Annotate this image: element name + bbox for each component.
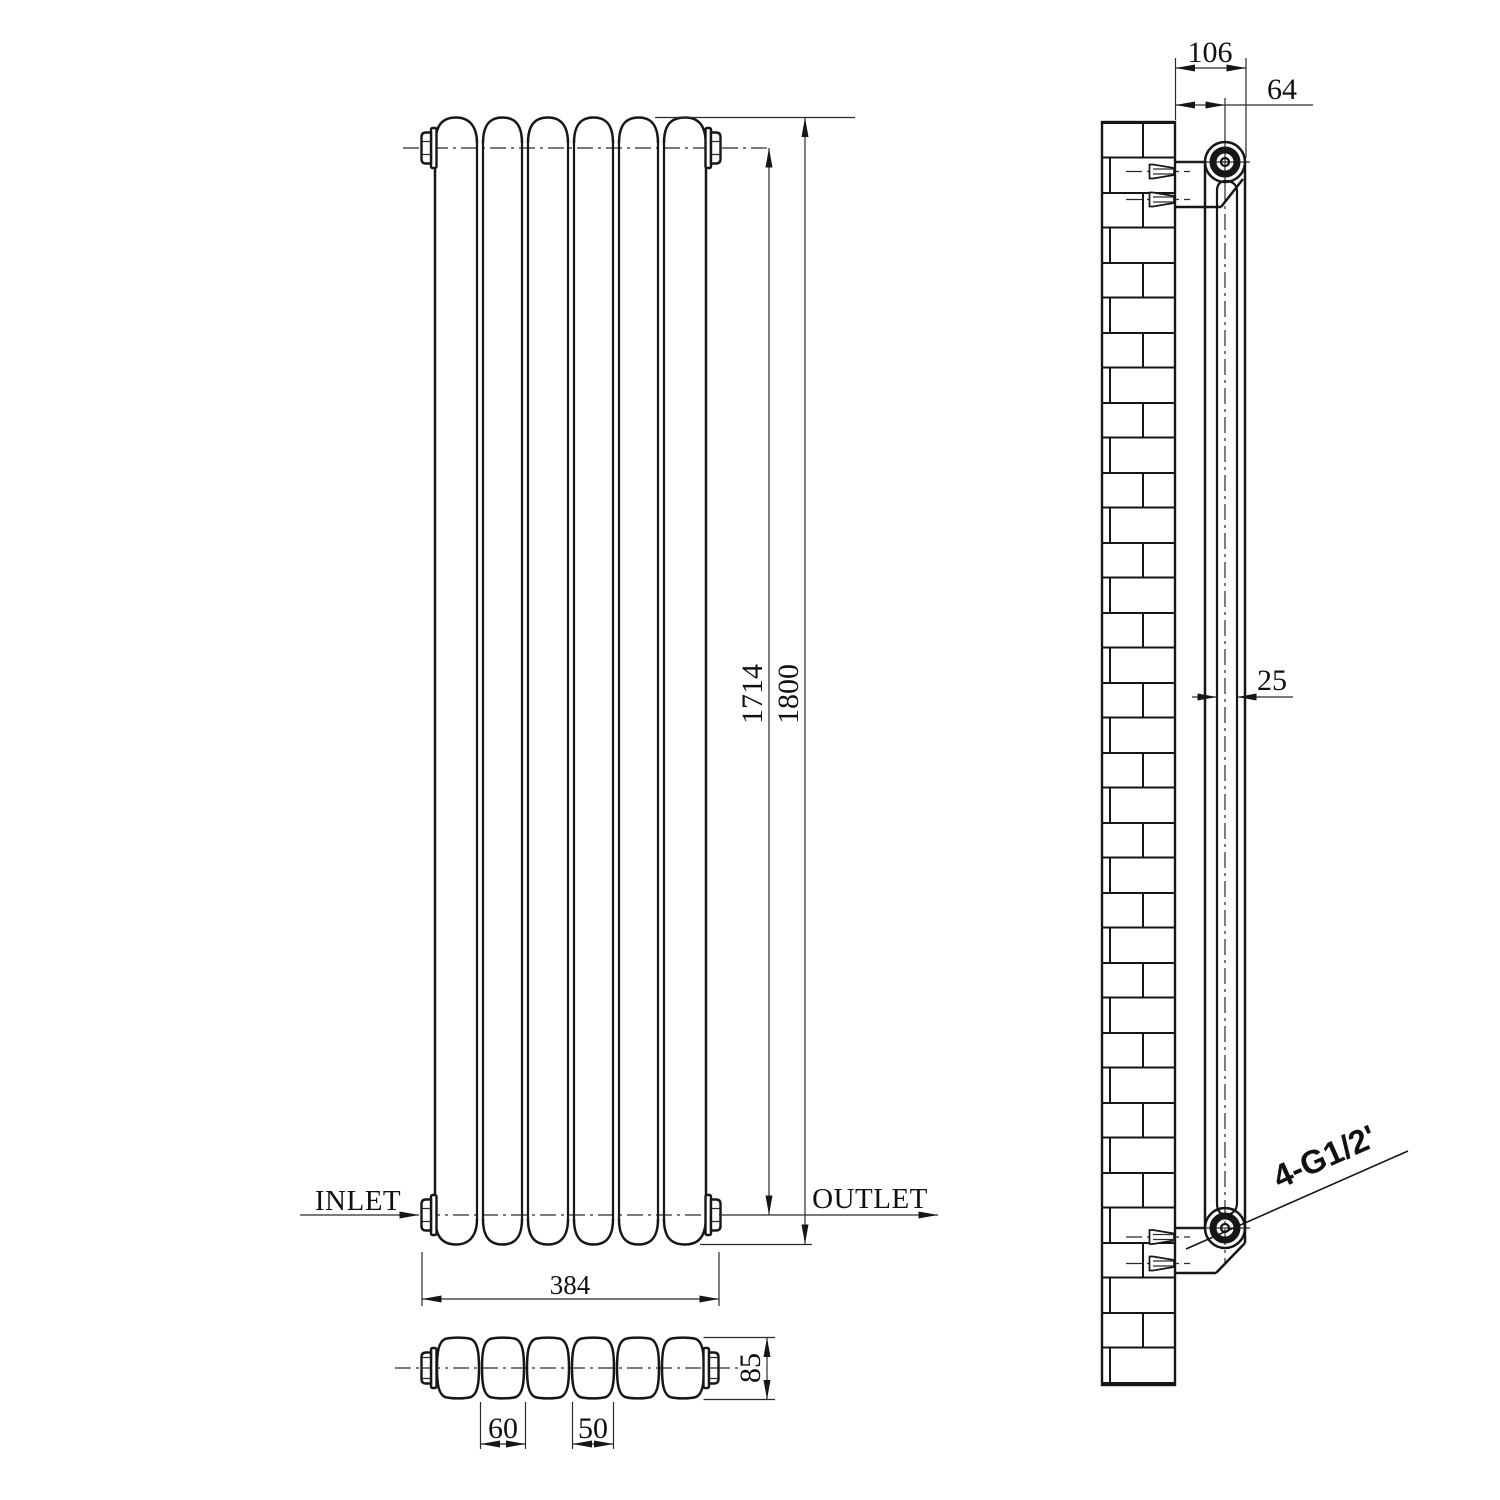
radiator-technical-drawing: 1714 1800 384 INLET OUTLET (0, 0, 1500, 1500)
outlet-label: OUTLET (812, 1183, 928, 1215)
canvas-background (0, 0, 1500, 1500)
inlet-label: INLET (315, 1185, 401, 1217)
dim-center-to-center: 1714 (736, 664, 769, 724)
plan-left-cap (422, 1348, 437, 1388)
dim-depth: 85 (734, 1353, 767, 1383)
front-bottom-right-cap (706, 1195, 721, 1235)
dim-wall-bracket-depth: 106 (1188, 36, 1233, 69)
front-top-right-cap (706, 128, 721, 168)
dim-panel-thickness: 25 (1257, 664, 1287, 697)
front-bottom-left-cap (422, 1195, 437, 1235)
front-top-left-cap (422, 128, 437, 168)
dim-overall-height: 1800 (772, 664, 805, 724)
plan-right-cap (704, 1348, 719, 1388)
brick-wall (1102, 122, 1175, 1385)
dim-column-width: 50 (578, 1412, 608, 1445)
dim-overall-width: 384 (550, 1270, 591, 1300)
dim-column-pitch: 60 (488, 1412, 518, 1445)
dim-wall-to-axis: 64 (1267, 73, 1297, 106)
